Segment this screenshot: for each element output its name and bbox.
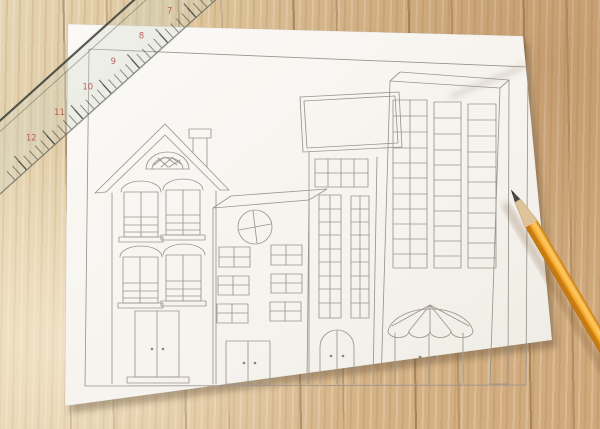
ruler-number: 11 xyxy=(54,108,65,118)
ruler-number: 12 xyxy=(26,133,37,143)
photo-art: 12 11 10 9 8 7 6 5 xyxy=(0,0,600,429)
ruler-number: 8 xyxy=(139,32,144,42)
ruler-number: 7 xyxy=(167,6,172,16)
ruler-number: 9 xyxy=(111,57,116,67)
ruler-number: 10 xyxy=(82,83,93,93)
photo-scene: 12 11 10 9 8 7 6 5 xyxy=(0,0,600,429)
